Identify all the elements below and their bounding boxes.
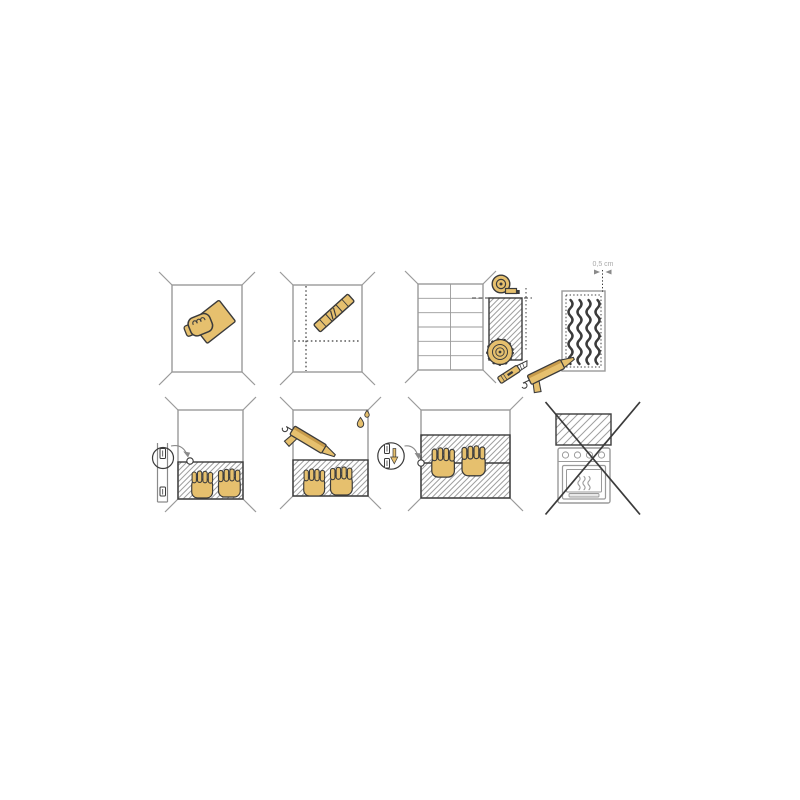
oven-knob [574,452,580,458]
pressing-hand-icon [304,469,325,496]
step-3-measure-and-cut [405,271,532,384]
pressing-hand-icon [462,446,485,476]
arrow-left-icon [606,270,612,275]
oven-icon [558,448,610,503]
oven-knob [598,452,604,458]
instruction-sheet: 0,5 cm [0,0,800,800]
panel [556,414,611,445]
oven-knob [562,452,568,458]
step-1-clean-wall [159,272,255,385]
pressing-hand-icon [331,467,353,495]
step-8-no-stove-warning [546,402,641,515]
measurement-label: 0,5 cm [592,261,613,268]
step-2-mark-guidelines [280,272,375,385]
step-6-seal-top-edge [276,397,381,509]
pressing-hand-icon [432,448,455,477]
step-4-apply-adhesive: 0,5 cm [519,261,614,398]
measuring-tape-icon [492,275,520,294]
mounting-rail [158,443,168,502]
alignment-point-circle [187,458,193,464]
arrow-right-icon [594,270,600,275]
step-7-mount-second-panel [378,397,523,511]
step-5-mount-first-panel [153,397,257,512]
instruction-drawing: 0,5 cm [0,0,800,800]
pressing-hand-icon [192,471,213,498]
pressing-hand-icon [219,469,241,497]
magnifier-circle [378,443,404,469]
heat-waves-icon [578,477,590,490]
alignment-point-circle [418,460,424,466]
oven-handle-bar [569,494,599,498]
circular-saw-blade-icon [487,339,513,365]
caulk-gun-icon [519,354,581,398]
edge-margin-annotation: 0,5 cm [592,261,613,292]
joint-profile-magnifier [378,443,404,469]
